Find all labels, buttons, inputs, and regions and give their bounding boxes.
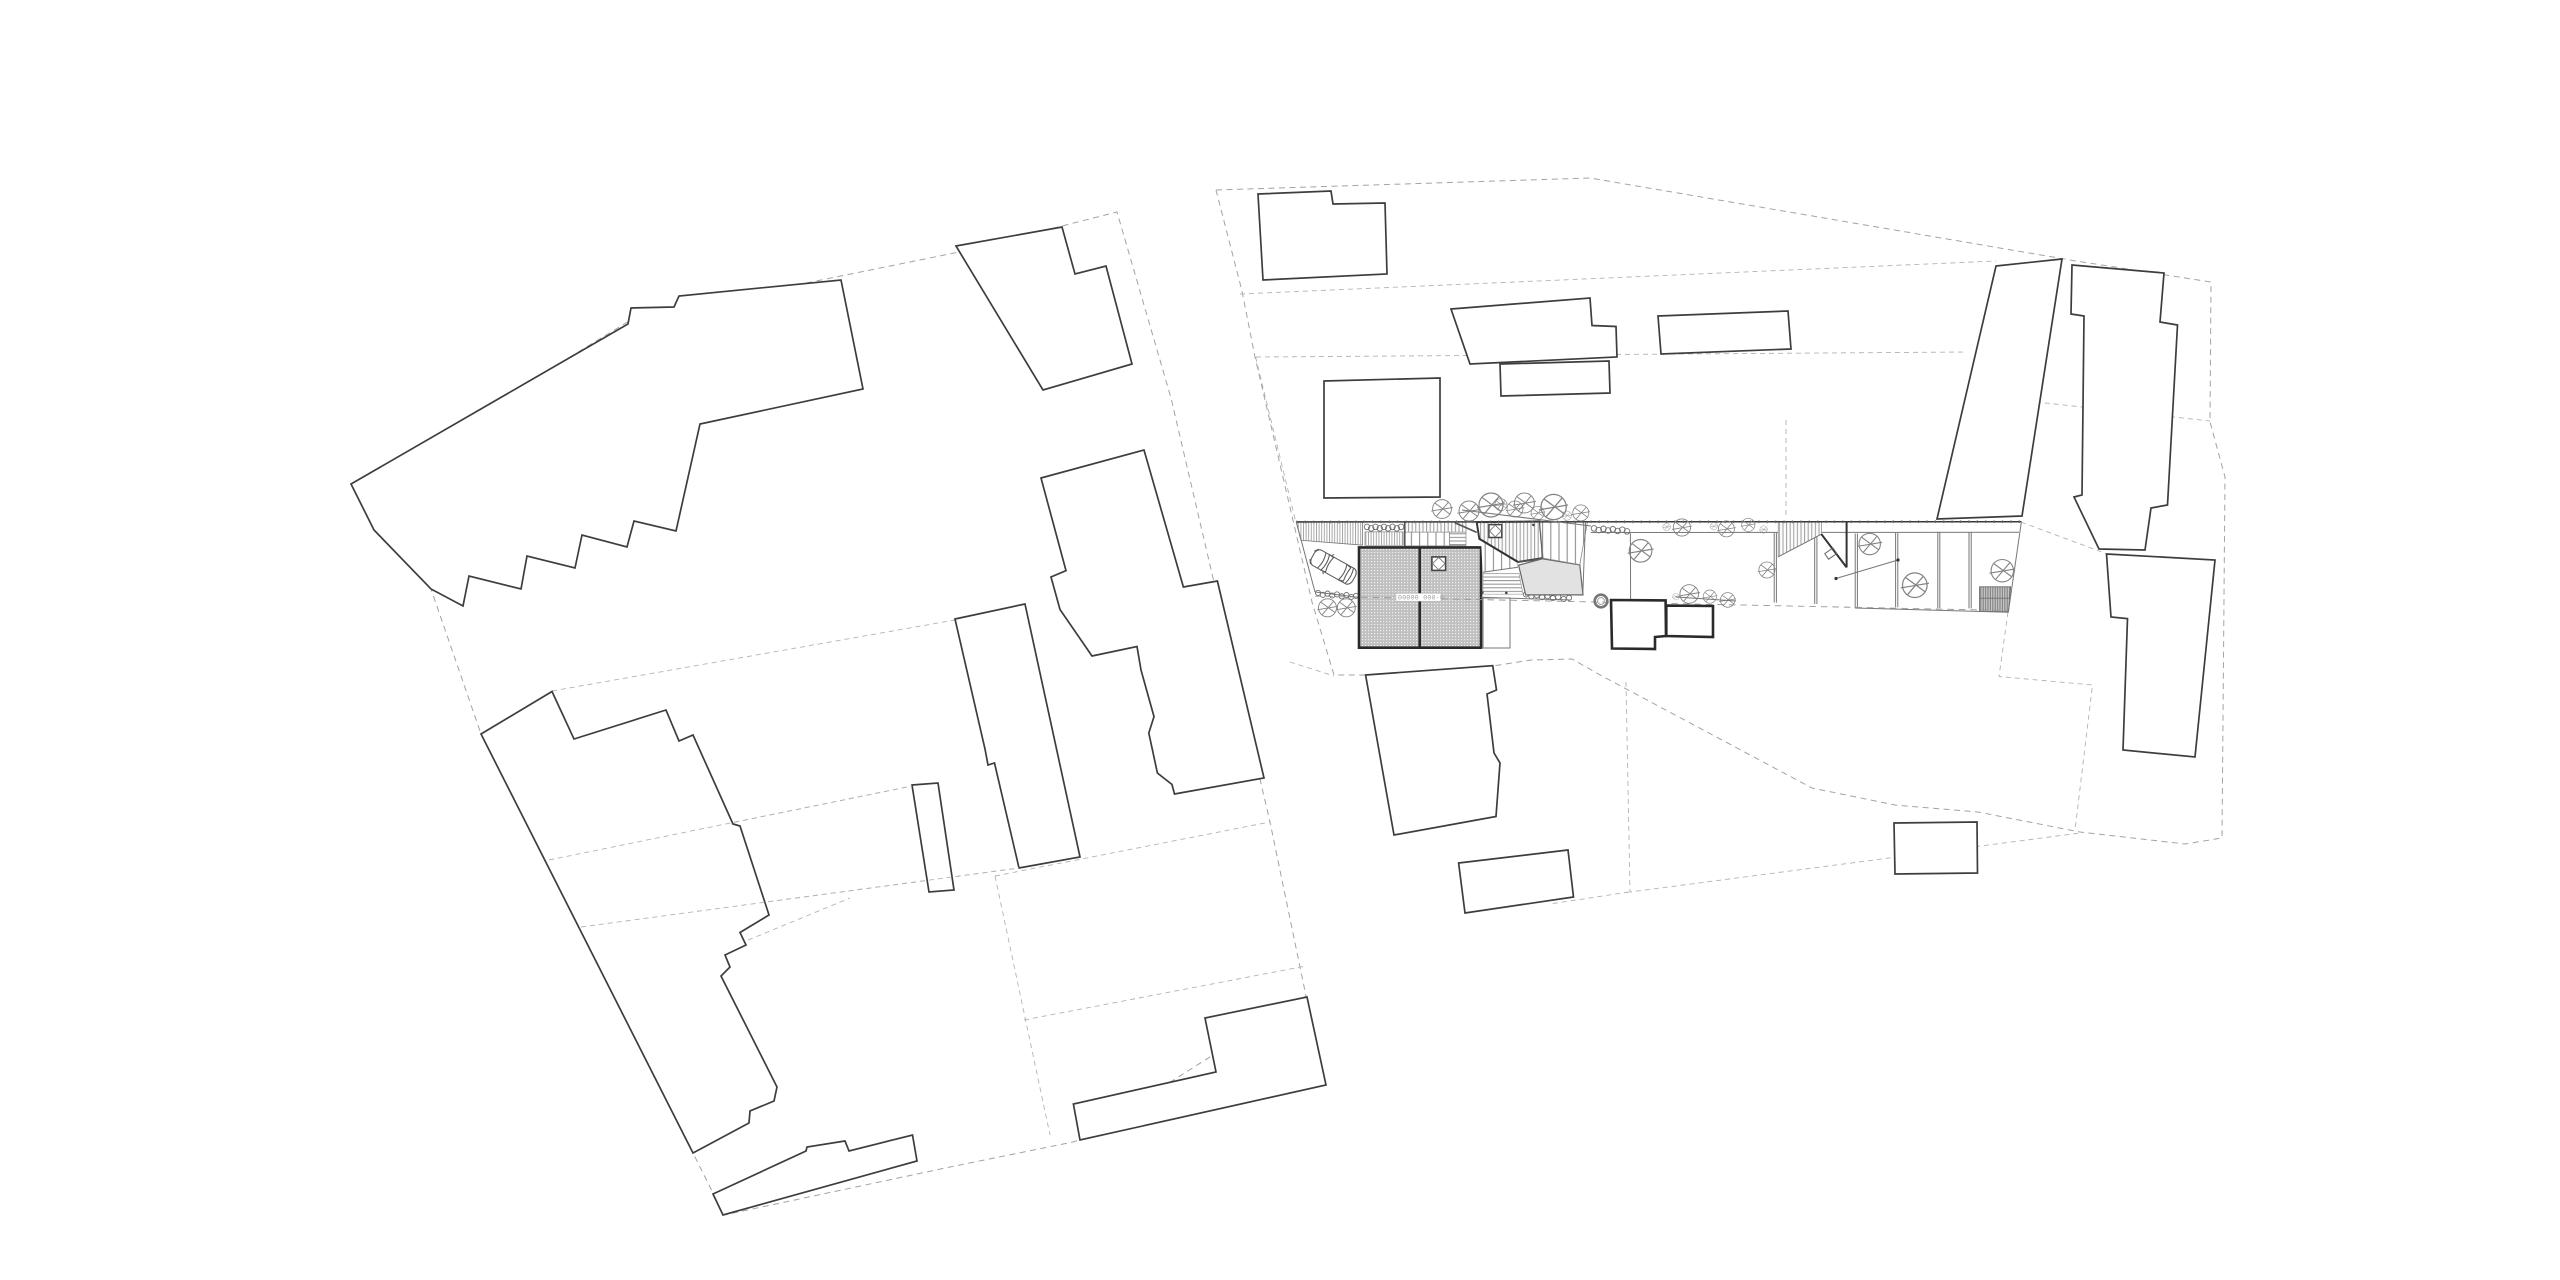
svg-text:00000 000-0: 00000 000-0 (1398, 595, 1444, 602)
